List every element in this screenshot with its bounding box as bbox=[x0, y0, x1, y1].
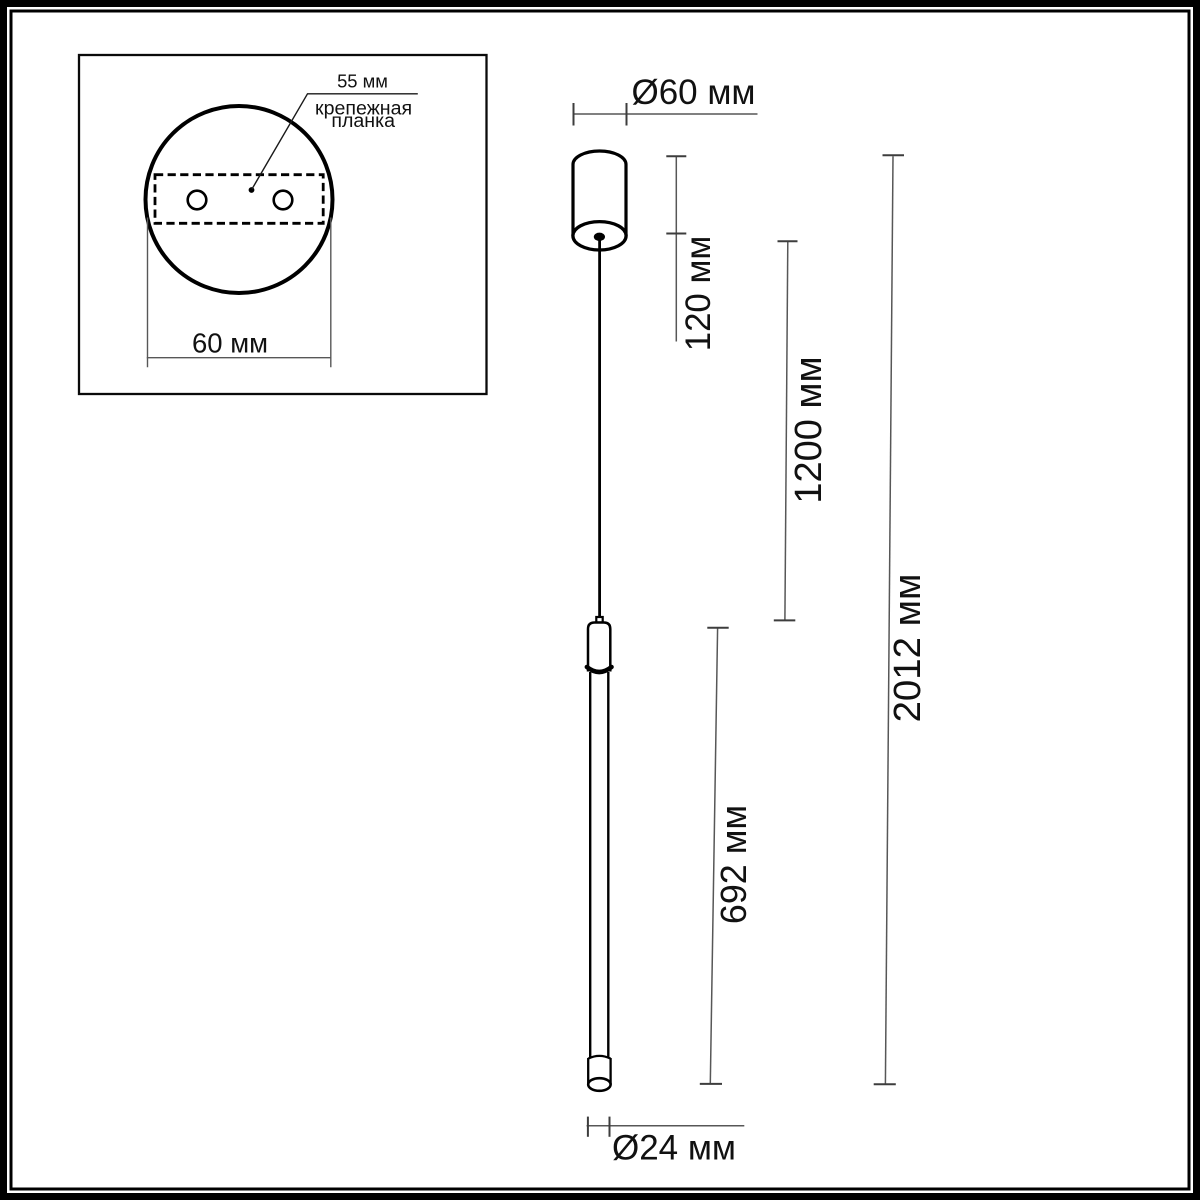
svg-text:1200 мм: 1200 мм bbox=[788, 356, 830, 503]
svg-text:60 мм: 60 мм bbox=[192, 328, 268, 359]
svg-text:120 мм: 120 мм bbox=[679, 236, 718, 352]
svg-text:2012 мм: 2012 мм bbox=[886, 574, 929, 723]
svg-text:Ø60 мм: Ø60 мм bbox=[631, 73, 755, 112]
svg-text:55 мм: 55 мм bbox=[337, 71, 388, 92]
svg-text:планка: планка bbox=[331, 110, 395, 132]
svg-text:Ø24 мм: Ø24 мм bbox=[612, 1129, 736, 1168]
svg-text:692 мм: 692 мм bbox=[714, 805, 754, 924]
